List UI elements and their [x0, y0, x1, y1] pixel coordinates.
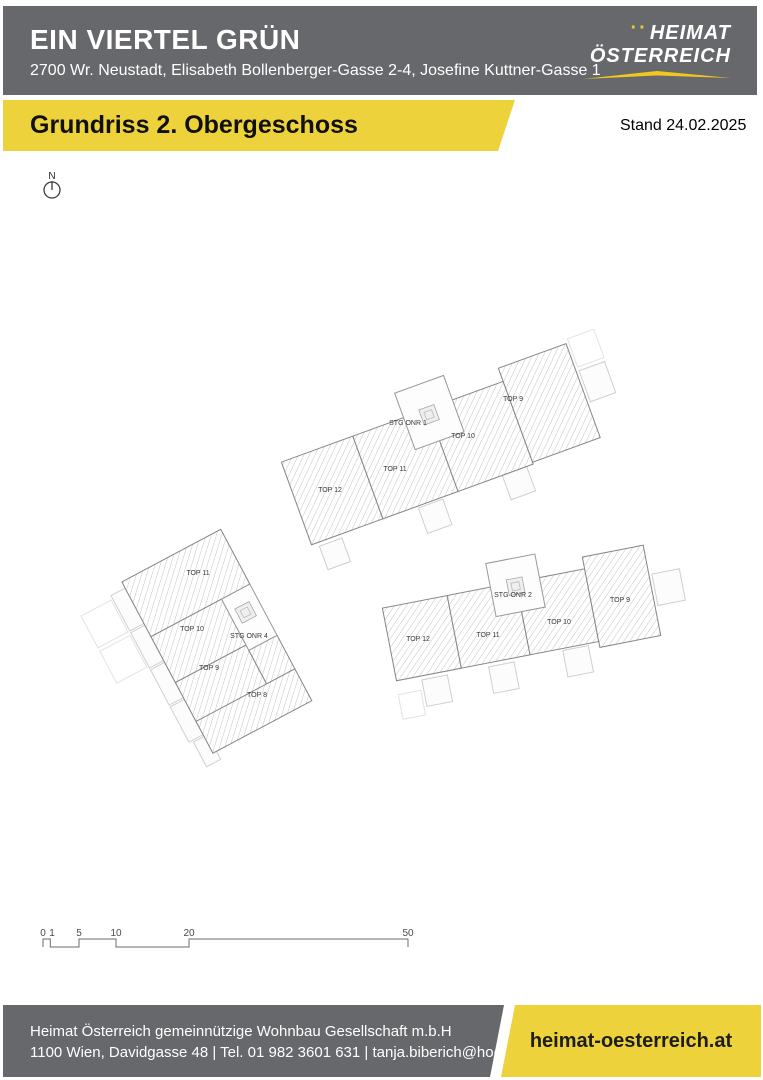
- site-plan: N: [0, 0, 763, 1080]
- scale-tick-label: 0: [40, 928, 46, 939]
- stairwell-label: STG ONR 2: [494, 592, 532, 599]
- footer-website: heimat-oesterreich.at: [530, 1030, 732, 1053]
- north-label: N: [48, 171, 55, 182]
- unit-label: TOP 10: [180, 626, 204, 633]
- unit-label: TOP 11: [476, 632, 499, 639]
- unit-label: TOP 8: [247, 692, 267, 699]
- stairwell-label: STG ONR 1: [389, 420, 427, 427]
- unit-label: TOP 10: [547, 619, 571, 626]
- unit-label: TOP 11: [186, 570, 209, 577]
- unit-label: TOP 11: [383, 466, 406, 473]
- unit-label: TOP 12: [318, 487, 342, 494]
- north-arrow-icon: N: [44, 171, 60, 198]
- footer-contact: 1100 Wien, Davidgasse 48 | Tel. 01 982 3…: [30, 1042, 504, 1063]
- scale-tick-label: 20: [183, 928, 195, 939]
- scale-tick-label: 10: [110, 928, 122, 939]
- building-left-shapes: [76, 529, 316, 785]
- footer-website-box: heimat-oesterreich.at: [501, 1005, 761, 1077]
- scale-tick-label: 1: [49, 928, 55, 939]
- unit-label: TOP 9: [199, 665, 219, 672]
- unit-label: TOP 9: [503, 396, 523, 403]
- scale-tick-label: 5: [76, 928, 82, 939]
- building-right-shapes: [377, 528, 698, 720]
- scale-bar: 0 1 5 10 20 50: [40, 928, 414, 947]
- unit-label: TOP 12: [406, 636, 430, 643]
- scale-tick-label: 50: [402, 928, 414, 939]
- footer-company: Heimat Österreich gemeinnützige Wohnbau …: [30, 1021, 504, 1042]
- building-top-shapes: [272, 322, 639, 572]
- footer-band: Heimat Österreich gemeinnützige Wohnbau …: [3, 1005, 504, 1077]
- unit-label: TOP 9: [610, 597, 630, 604]
- unit-label: TOP 10: [451, 433, 475, 440]
- stairwell-label: STG ONR 4: [230, 633, 268, 640]
